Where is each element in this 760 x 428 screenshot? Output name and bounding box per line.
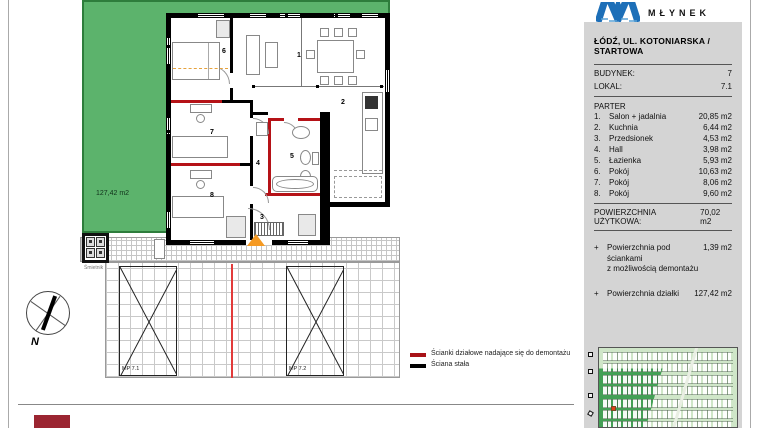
divider xyxy=(594,230,732,231)
entrance-marker xyxy=(247,234,265,246)
floor-label: PARTER xyxy=(594,102,732,111)
footer-logo-block xyxy=(34,415,70,428)
toilet xyxy=(300,150,311,165)
extra-value: 127,42 m2 xyxy=(694,289,732,300)
chair xyxy=(196,114,205,123)
height-dashed-line xyxy=(173,68,228,69)
stove xyxy=(365,96,378,109)
plus-sign: + xyxy=(594,243,607,275)
room-no: 4. xyxy=(594,144,609,155)
wall-segment xyxy=(320,112,330,240)
window xyxy=(362,13,378,18)
room-number-4: 4 xyxy=(256,160,260,167)
legend-demountable-label: Ścianki działowe nadające się do demonta… xyxy=(431,350,570,357)
wall-segment xyxy=(222,100,253,103)
partition-wall xyxy=(268,118,284,121)
site-map-house-row xyxy=(603,375,733,384)
sofa xyxy=(246,35,260,75)
trash-label: Śmietnik xyxy=(84,265,103,271)
room-name: Przedsionek xyxy=(609,133,703,144)
north-label: N xyxy=(31,336,39,348)
parking-label-1: MP 7.1 xyxy=(122,366,139,372)
partition-wall xyxy=(265,193,320,196)
parking-label-2: MP 7.2 xyxy=(289,366,306,372)
logo-bar: MŁYNEK xyxy=(584,0,742,22)
washer xyxy=(256,122,268,136)
chair xyxy=(356,50,365,59)
usable-area-label: POWIERZCHNIA UŻYTKOWA: xyxy=(594,208,700,226)
trash-bin xyxy=(96,237,105,247)
bed-line xyxy=(208,43,209,79)
room-row: 2. Kuchnia 6,44 m2 xyxy=(594,122,732,133)
wall-segment xyxy=(230,13,233,73)
usable-area-value: 70,02 m2 xyxy=(700,208,732,226)
wardrobe xyxy=(216,20,230,38)
window xyxy=(190,240,214,245)
wall-segment xyxy=(330,202,390,207)
window xyxy=(288,240,308,245)
planter-box xyxy=(154,239,165,259)
parking-stall-1 xyxy=(119,266,177,376)
dimension-mark xyxy=(167,200,170,203)
info-panel: MŁYNEK ŁÓDŹ, UL. KOTONIARSKA / STARTOWA … xyxy=(584,0,742,428)
room-number-1: 1 xyxy=(297,52,301,59)
usable-area-row: POWIERZCHNIA UŻYTKOWA: 70,02 m2 xyxy=(594,208,732,226)
legend-demountable-swatch xyxy=(410,353,426,357)
garden-area-top xyxy=(166,0,390,13)
wall-segment xyxy=(230,88,233,100)
unit-label: LOKAL: xyxy=(594,82,622,91)
floorplan-sheet: 127,42 m2 MP 7.1 MP 7.2 Śmietnik xyxy=(0,0,760,428)
window xyxy=(250,13,266,18)
compass-needle xyxy=(41,295,57,330)
extra-label: Powierzchnia pod ściankami z możliwością… xyxy=(607,243,703,275)
room-number-8: 8 xyxy=(210,192,214,199)
dimension-line xyxy=(301,18,302,86)
desk xyxy=(190,170,212,179)
room-no: 5. xyxy=(594,155,609,166)
wardrobe xyxy=(298,214,316,236)
wall-segment xyxy=(253,112,268,115)
site-map-road-marker xyxy=(588,352,593,357)
sink xyxy=(365,118,378,131)
logo-text: MŁYNEK xyxy=(648,8,710,18)
site-map-house-row xyxy=(603,363,733,372)
dimension-mark xyxy=(167,130,170,133)
wall-segment xyxy=(250,136,253,186)
dining-table xyxy=(317,40,354,73)
extra-row: + Powierzchnia pod ściankami z możliwośc… xyxy=(594,243,732,275)
kitchen-dashed-line xyxy=(334,170,382,171)
room-name: Łazienka xyxy=(609,155,703,166)
site-map-house-row xyxy=(603,386,733,395)
divider xyxy=(594,203,732,204)
site-map xyxy=(598,347,738,428)
room-name: Kuchnia xyxy=(609,122,703,133)
room-name: Pokój xyxy=(609,188,703,199)
divider xyxy=(594,64,732,65)
chair xyxy=(348,28,357,37)
room-number-3: 3 xyxy=(260,214,264,221)
plus-sign: + xyxy=(594,289,607,300)
room-area: 3,98 m2 xyxy=(703,144,732,155)
garden-area xyxy=(82,0,166,233)
partition-wall xyxy=(298,118,320,121)
room-area: 4,53 m2 xyxy=(703,133,732,144)
room-area: 5,93 m2 xyxy=(703,155,732,166)
bed xyxy=(172,196,224,218)
bed xyxy=(172,42,220,80)
room-no: 8. xyxy=(594,188,609,199)
room-no: 2. xyxy=(594,122,609,133)
divider xyxy=(594,96,732,97)
room-row: 3. Przedsionek 4,53 m2 xyxy=(594,133,732,144)
site-map-road-marker xyxy=(588,393,593,398)
site-map-house-row xyxy=(603,352,733,361)
window xyxy=(196,13,224,18)
extra-label-line1: Powierzchnia działki xyxy=(607,289,679,298)
partition-wall xyxy=(171,100,222,103)
address-line: ŁÓDŹ, UL. KOTONIARSKA / STARTOWA xyxy=(594,36,732,56)
chair xyxy=(196,180,205,189)
room-row: 8. Pokój 9,60 m2 xyxy=(594,188,732,199)
legend-solid-swatch xyxy=(410,364,426,368)
wardrobe xyxy=(226,216,246,238)
window xyxy=(280,13,300,18)
trash-bin xyxy=(86,248,95,258)
window xyxy=(385,70,390,92)
kitchen-counter-dashed xyxy=(334,176,382,198)
dimension-mark xyxy=(240,14,243,17)
dimension-mark xyxy=(285,14,288,17)
parking-stall-2 xyxy=(286,266,344,376)
room-no: 7. xyxy=(594,177,609,188)
room-name: Pokój xyxy=(609,166,699,177)
chair xyxy=(306,50,315,59)
room-area: 20,85 m2 xyxy=(699,111,732,122)
room-name: Hall xyxy=(609,144,703,155)
site-map-current-unit xyxy=(611,406,616,411)
mlynek-logo-icon xyxy=(596,2,640,22)
room-row: 4. Hall 3,98 m2 xyxy=(594,144,732,155)
building-row: BUDYNEK: 7 xyxy=(594,69,732,78)
dimension-mark xyxy=(167,45,170,48)
floorplan-drawing: 127,42 m2 MP 7.1 MP 7.2 Śmietnik xyxy=(0,0,584,428)
chair xyxy=(334,28,343,37)
wall-segment xyxy=(385,13,390,205)
room-area: 8,06 m2 xyxy=(703,177,732,188)
bed xyxy=(172,136,228,158)
parking-divider-line xyxy=(231,264,233,378)
extra-row: + Powierzchnia działki 127,42 m2 xyxy=(594,289,732,300)
site-map-house-row xyxy=(603,410,733,419)
page-right-border xyxy=(750,0,751,428)
room-row: 7. Pokój 8,06 m2 xyxy=(594,177,732,188)
room-number-5: 5 xyxy=(290,153,294,160)
room-no: 6. xyxy=(594,166,609,177)
toilet-tank xyxy=(312,152,319,165)
room-area: 10,63 m2 xyxy=(699,166,732,177)
site-map-house-row xyxy=(603,421,733,428)
partition-wall xyxy=(171,163,240,166)
room-area: 9,60 m2 xyxy=(703,188,732,199)
window xyxy=(166,38,171,64)
chair xyxy=(334,76,343,85)
dimension-mark xyxy=(195,14,198,17)
chair xyxy=(320,76,329,85)
room-row: 6. Pokój 10,63 m2 xyxy=(594,166,732,177)
room-no: 3. xyxy=(594,133,609,144)
desk xyxy=(190,104,212,113)
chair xyxy=(320,28,329,37)
room-name: Pokój xyxy=(609,177,703,188)
window xyxy=(166,212,171,228)
unit-row: LOKAL: 7.1 xyxy=(594,82,732,91)
legend-solid-label: Ściana stała xyxy=(431,361,469,368)
dimension-mark xyxy=(380,85,383,88)
room-row: 1. Salon + jadalnia 20,85 m2 xyxy=(594,111,732,122)
room-name: Salon + jadalnia xyxy=(609,111,699,122)
chair xyxy=(348,76,357,85)
room-number-7: 7 xyxy=(210,129,214,136)
site-map-road-marker xyxy=(588,369,593,374)
coffee-table xyxy=(265,42,278,68)
dimension-mark xyxy=(252,85,255,88)
building-label: BUDYNEK: xyxy=(594,69,635,78)
bathtub-basin xyxy=(276,179,314,189)
extra-label-line1: Powierzchnia pod ściankami xyxy=(607,243,670,263)
trash-bin xyxy=(86,237,95,247)
building-value: 7 xyxy=(728,69,732,78)
extra-label: Powierzchnia działki xyxy=(607,289,694,300)
room-number-2: 2 xyxy=(341,99,345,106)
dimension-mark xyxy=(335,14,338,17)
room-row: 5. Łazienka 5,93 m2 xyxy=(594,155,732,166)
room-area: 6,44 m2 xyxy=(703,122,732,133)
dimension-mark xyxy=(316,85,319,88)
trash-bin xyxy=(96,248,105,258)
compass xyxy=(26,291,70,335)
unit-value: 7.1 xyxy=(721,82,732,91)
wall-segment xyxy=(250,100,253,118)
footer-rule xyxy=(18,404,574,405)
extra-value: 1,39 m2 xyxy=(703,243,732,275)
room-number-6: 6 xyxy=(222,48,226,55)
extra-label-line2: z możliwością demontażu xyxy=(607,264,698,273)
room-no: 1. xyxy=(594,111,609,122)
site-map-house-row xyxy=(603,399,733,408)
washbasin xyxy=(292,126,310,139)
garden-area-label: 127,42 m2 xyxy=(96,190,129,197)
